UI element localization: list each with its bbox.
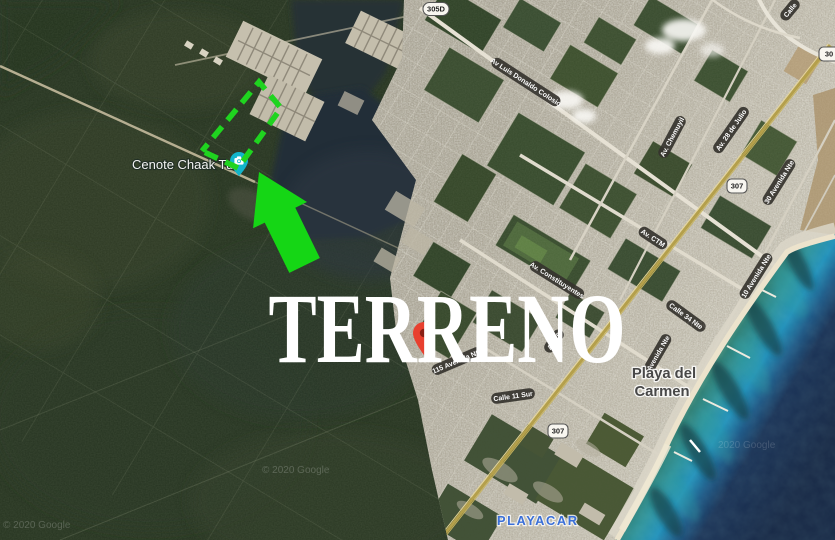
svg-text:305D: 305D <box>427 5 446 14</box>
svg-text:TERRENO: TERRENO <box>269 273 626 384</box>
svg-text:2020 Google: 2020 Google <box>718 440 776 451</box>
svg-text:© 2020 Goog: © 2020 Goog <box>660 320 720 331</box>
svg-text:Carmen: Carmen <box>634 384 689 400</box>
svg-text:Playa del: Playa del <box>632 366 696 382</box>
svg-text:30: 30 <box>825 50 833 59</box>
svg-text:© 2020 Google: © 2020 Google <box>3 520 71 531</box>
svg-text:307: 307 <box>731 182 744 191</box>
svg-text:PLAYACAR: PLAYACAR <box>497 513 579 528</box>
svg-text:307: 307 <box>552 427 565 436</box>
svg-text:© 2020 Google: © 2020 Google <box>262 465 330 476</box>
